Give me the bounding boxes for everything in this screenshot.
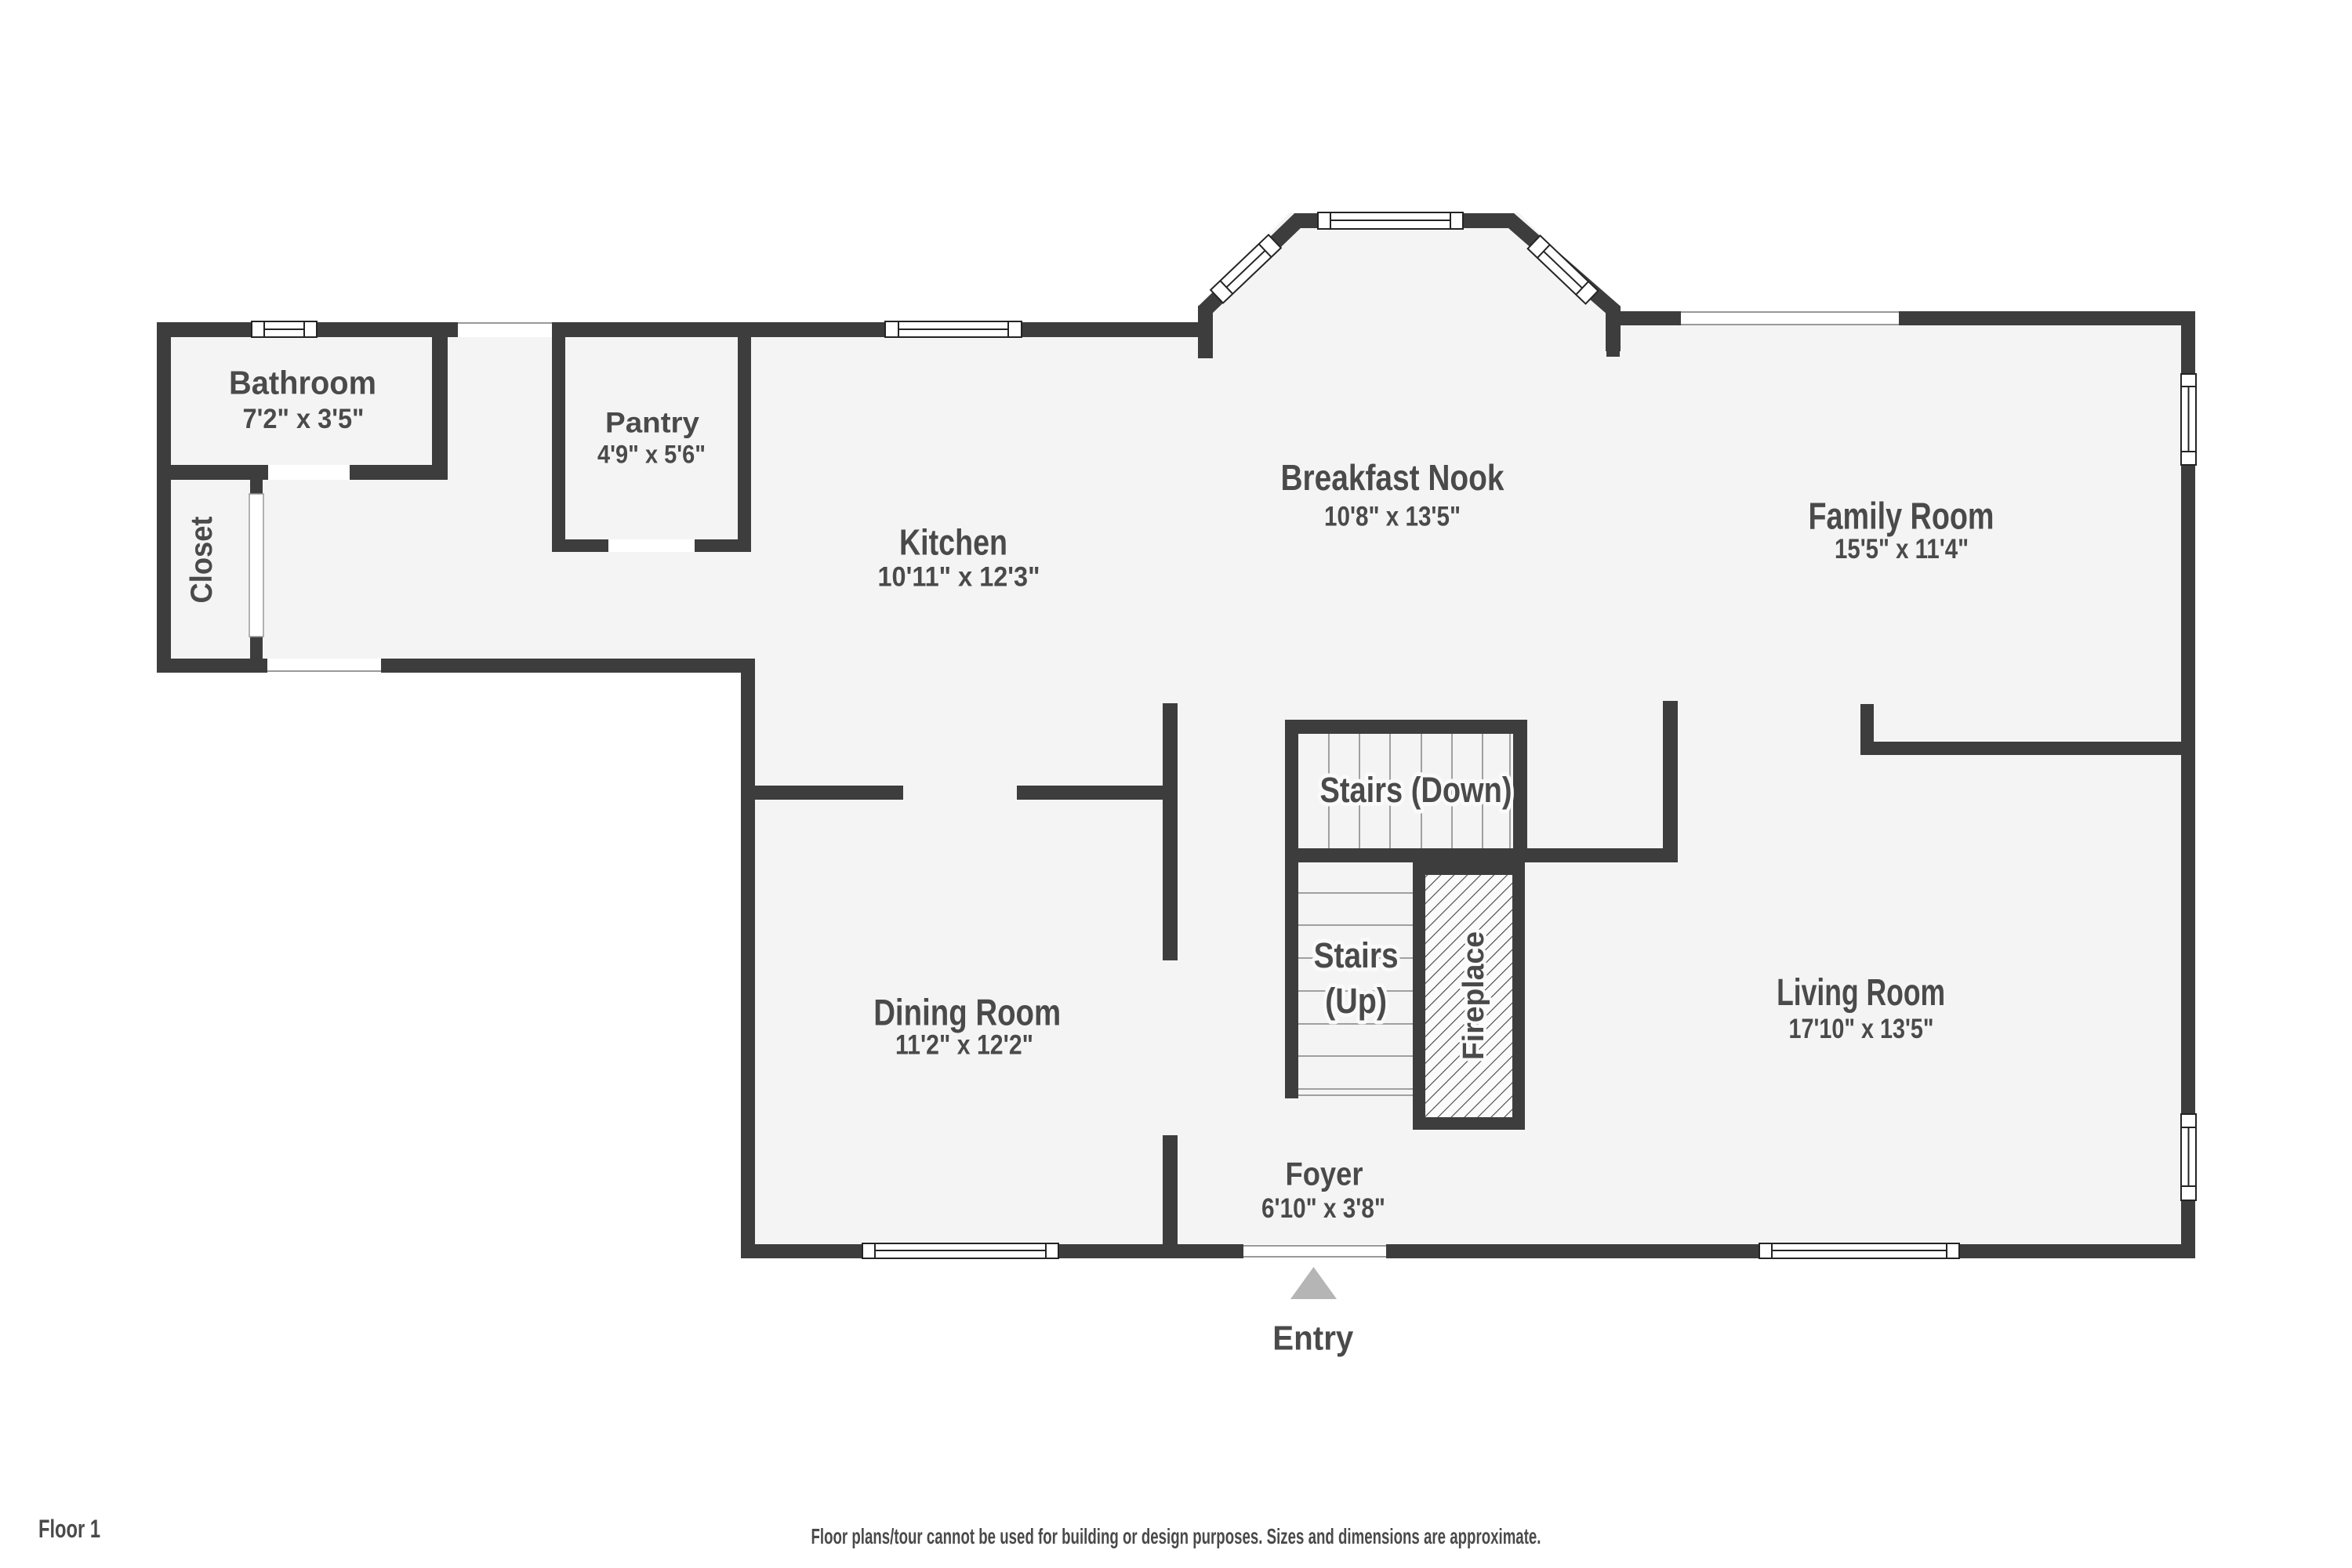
svg-text:Closet: Closet	[185, 517, 219, 604]
svg-text:Family Room: Family Room	[1809, 496, 1994, 538]
svg-text:Kitchen: Kitchen	[899, 522, 1007, 563]
svg-text:Stairs: Stairs	[1314, 935, 1399, 975]
svg-text:Dining Room: Dining Room	[873, 992, 1061, 1033]
svg-text:Living Room: Living Room	[1777, 972, 1945, 1014]
svg-text:15'5" x 11'4": 15'5" x 11'4"	[1835, 534, 1969, 564]
svg-text:Stairs (Down): Stairs (Down)	[1320, 770, 1512, 810]
svg-text:10'8" x 13'5": 10'8" x 13'5"	[1324, 502, 1461, 532]
svg-text:11'2" x 12'2": 11'2" x 12'2"	[895, 1030, 1033, 1061]
svg-text:Pantry: Pantry	[605, 407, 699, 439]
svg-text:Fireplace: Fireplace	[1457, 931, 1490, 1060]
svg-text:17'10" x 13'5": 17'10" x 13'5"	[1789, 1014, 1934, 1044]
svg-text:(Up): (Up)	[1325, 981, 1387, 1021]
svg-text:4'9" x 5'6": 4'9" x 5'6"	[597, 441, 706, 469]
svg-text:10'11" x 12'3": 10'11" x 12'3"	[878, 562, 1040, 593]
svg-text:Floor plans/tour cannot be use: Floor plans/tour cannot be used for buil…	[811, 1524, 1541, 1548]
svg-text:7'2" x 3'5": 7'2" x 3'5"	[243, 404, 365, 434]
svg-text:Entry: Entry	[1272, 1319, 1353, 1358]
svg-text:Foyer: Foyer	[1286, 1156, 1363, 1192]
svg-text:Bathroom: Bathroom	[229, 365, 376, 401]
svg-text:6'10" x 3'8": 6'10" x 3'8"	[1261, 1193, 1385, 1224]
svg-text:Breakfast Nook: Breakfast Nook	[1281, 457, 1504, 498]
svg-text:Floor 1: Floor 1	[38, 1515, 100, 1543]
